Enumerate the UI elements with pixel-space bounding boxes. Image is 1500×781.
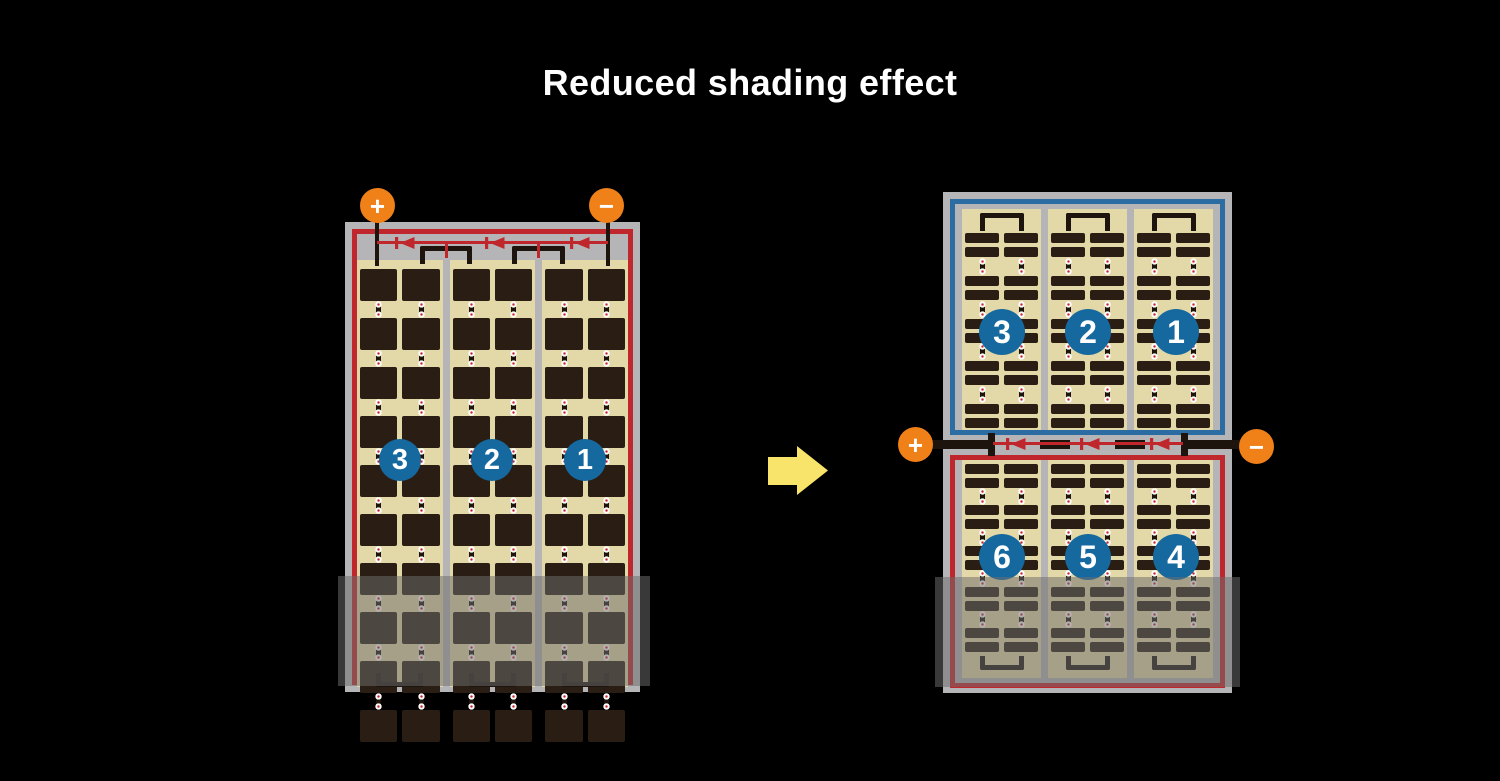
half-cell-pair — [1137, 404, 1171, 428]
cell-connector-dots — [561, 350, 568, 367]
half-cell-pair — [1051, 464, 1085, 488]
half-cell-bar — [1051, 247, 1085, 257]
half-cell-bar — [1051, 478, 1085, 488]
string-loop-connector — [1066, 213, 1110, 231]
cell-connector-dots — [468, 497, 475, 514]
cell-gap — [495, 546, 532, 563]
half-cell-bar — [1090, 464, 1124, 474]
cell-connector-dots — [375, 497, 382, 514]
half-cell-bar — [1004, 375, 1038, 385]
cell-gap — [1137, 385, 1171, 404]
bypass-diode-icon — [1080, 437, 1100, 450]
cell-connector-dots — [1151, 386, 1158, 403]
half-cell-bar — [1004, 505, 1038, 515]
cell-gap — [545, 399, 582, 416]
string-number-circle: 2 — [471, 439, 513, 481]
cell-connector-dots — [375, 399, 382, 416]
solar-cell — [545, 318, 582, 350]
cell-gap — [545, 497, 582, 514]
half-cell-bar — [965, 505, 999, 515]
half-cell-pair — [1004, 276, 1038, 300]
cell-gap — [453, 693, 490, 710]
cell-gap — [1137, 257, 1171, 276]
cell-connector-dots — [561, 399, 568, 416]
cell-connector-dots — [1104, 386, 1111, 403]
half-cell-bar — [1137, 519, 1171, 529]
half-cell-bar — [1051, 519, 1085, 529]
half-cell-pair — [1137, 233, 1171, 257]
solar-cell — [402, 367, 439, 399]
half-cell-bar — [1090, 418, 1124, 428]
half-cell-bar — [965, 233, 999, 243]
half-cell-bar — [1051, 276, 1085, 286]
cell-connector-dots — [603, 350, 610, 367]
cell-connector-dots — [468, 350, 475, 367]
diagram-canvas: Reduced shading effect + − 3 2 — [0, 0, 1500, 781]
cell-gap — [1137, 488, 1171, 505]
cell-gap — [402, 693, 439, 710]
half-cell-pair — [1051, 404, 1085, 428]
half-cell-bar — [1090, 361, 1124, 371]
string-number-circle: 5 — [1065, 534, 1111, 580]
bypass-diode-icon — [395, 236, 415, 249]
cell-connector-dots — [468, 399, 475, 416]
half-cell-bar — [1137, 233, 1171, 243]
half-cell-bar — [1176, 464, 1210, 474]
cell-connector-dots — [375, 350, 382, 367]
half-cell-bar — [1137, 464, 1171, 474]
cell-gap — [1176, 385, 1210, 404]
half-cell-pair — [1090, 276, 1124, 300]
cell-connector-dots — [979, 258, 986, 275]
negative-terminal: − — [1239, 429, 1274, 464]
string-number-circle: 2 — [1065, 309, 1111, 355]
half-cell-pair — [965, 276, 999, 300]
cell-gap — [402, 301, 439, 318]
half-cell-pair — [1004, 505, 1038, 529]
solar-cell — [453, 367, 490, 399]
half-cell-bar — [1004, 290, 1038, 300]
shading-overlay-right — [935, 577, 1240, 687]
half-cell-bar — [1137, 290, 1171, 300]
solar-cell — [360, 269, 397, 301]
half-cell-bar — [1004, 361, 1038, 371]
half-cell-bar — [1176, 375, 1210, 385]
half-cell-pair — [1004, 464, 1038, 488]
half-cell-bar — [1004, 464, 1038, 474]
half-cell-pair — [965, 233, 999, 257]
solar-cell — [495, 269, 532, 301]
half-cell-pair — [1176, 404, 1210, 428]
cell-gap — [495, 693, 532, 710]
cell-connector-dots — [375, 693, 382, 710]
half-cell-bar — [1004, 276, 1038, 286]
cell-gap — [965, 385, 999, 404]
junction-wire — [1185, 440, 1245, 449]
bypass-diode-icon — [570, 236, 590, 249]
half-cell-bar — [1176, 519, 1210, 529]
half-cell-bar — [1137, 478, 1171, 488]
half-cell-pair — [1004, 361, 1038, 385]
cell-connector-dots — [1151, 343, 1158, 360]
shading-overlay-left — [338, 576, 650, 686]
cell-gap — [402, 399, 439, 416]
solar-cell — [453, 710, 490, 742]
cell-connector-dots — [510, 301, 517, 318]
string-number-circle: 6 — [979, 534, 1025, 580]
cell-gap — [588, 350, 625, 367]
cell-connector-dots — [1065, 386, 1072, 403]
half-cell-bar — [965, 276, 999, 286]
cell-gap — [453, 399, 490, 416]
half-cell-bar — [1004, 247, 1038, 257]
half-cell-bar — [965, 464, 999, 474]
solar-cell — [360, 710, 397, 742]
half-cell-bar — [1176, 247, 1210, 257]
half-cell-bar — [1004, 233, 1038, 243]
half-cell-pair — [1137, 505, 1171, 529]
cell-connector-dots — [418, 350, 425, 367]
string-loop-connector — [1152, 213, 1196, 231]
cell-connector-dots — [510, 693, 517, 710]
solar-cell — [495, 318, 532, 350]
half-cell-bar — [1004, 519, 1038, 529]
half-cell-pair — [1051, 361, 1085, 385]
cell-connector-dots — [468, 546, 475, 563]
cell-gap — [545, 350, 582, 367]
transition-arrow-icon — [765, 444, 831, 498]
string-number-circle: 1 — [564, 439, 606, 481]
cell-connector-dots — [418, 301, 425, 318]
half-cell-pair — [1176, 505, 1210, 529]
solar-cell — [495, 367, 532, 399]
half-cell-bar — [1004, 418, 1038, 428]
bypass-diode-icon — [1150, 437, 1170, 450]
half-cell-pair — [1090, 464, 1124, 488]
cell-gap — [360, 497, 397, 514]
string-number-circle: 3 — [979, 309, 1025, 355]
half-cell-bar — [1051, 418, 1085, 428]
half-cell-bar — [1137, 361, 1171, 371]
half-cell-pair — [1137, 276, 1171, 300]
half-cell-pair — [1137, 361, 1171, 385]
string-number-circle: 1 — [1153, 309, 1199, 355]
half-cell-pair — [1090, 404, 1124, 428]
cell-gap — [1090, 257, 1124, 276]
solar-cell — [588, 318, 625, 350]
half-cell-bar — [1051, 233, 1085, 243]
cell-connector-dots — [468, 301, 475, 318]
cell-gap — [1051, 488, 1085, 505]
half-cell-bar — [1004, 404, 1038, 414]
cell-gap — [495, 301, 532, 318]
half-cell-bar — [1090, 290, 1124, 300]
bypass-diode-icon — [1006, 437, 1026, 450]
cell-gap — [495, 350, 532, 367]
cell-gap — [588, 693, 625, 710]
cell-connector-dots — [510, 546, 517, 563]
half-cell-bar — [1137, 247, 1171, 257]
cell-gap — [545, 546, 582, 563]
junction-wire — [931, 440, 993, 449]
half-cell-bar — [965, 361, 999, 371]
half-cell-bar — [1090, 519, 1124, 529]
cell-connector-dots — [1104, 258, 1111, 275]
half-cell-bar — [1176, 233, 1210, 243]
cell-gap — [588, 399, 625, 416]
half-cell-bar — [965, 478, 999, 488]
cell-connector-dots — [1190, 488, 1197, 505]
cell-connector-dots — [1190, 258, 1197, 275]
diode-tap-wire — [537, 243, 540, 258]
half-cell-bar — [1176, 505, 1210, 515]
negative-terminal: − — [589, 188, 624, 223]
cell-gap — [965, 488, 999, 505]
half-cell-bar — [1090, 404, 1124, 414]
half-cell-pair — [1090, 361, 1124, 385]
cell-connector-dots — [603, 301, 610, 318]
cell-connector-dots — [1151, 488, 1158, 505]
half-cell-pair — [965, 464, 999, 488]
half-cell-bar — [1090, 233, 1124, 243]
half-cell-bar — [1137, 418, 1171, 428]
solar-cell — [588, 710, 625, 742]
half-cell-bar — [1051, 290, 1085, 300]
cell-gap — [402, 497, 439, 514]
cell-connector-dots — [375, 546, 382, 563]
cell-gap — [1004, 488, 1038, 505]
cell-connector-dots — [418, 546, 425, 563]
half-cell-pair — [1004, 404, 1038, 428]
half-cell-bar — [1051, 404, 1085, 414]
cell-gap — [1090, 385, 1124, 404]
right-bypass-diode-line — [993, 442, 1183, 445]
cell-gap — [495, 497, 532, 514]
cell-connector-dots — [1018, 488, 1025, 505]
half-cell-bar — [1137, 404, 1171, 414]
cell-connector-dots — [603, 693, 610, 710]
diode-tap-wire — [445, 243, 448, 258]
solar-cell — [360, 318, 397, 350]
half-cell-pair — [965, 505, 999, 529]
half-cell-bar — [965, 375, 999, 385]
half-cell-bar — [1051, 505, 1085, 515]
solar-cell — [545, 710, 582, 742]
solar-cell — [402, 318, 439, 350]
half-cell-pair — [965, 361, 999, 385]
cell-connector-dots — [510, 399, 517, 416]
cell-gap — [588, 546, 625, 563]
half-cell-bar — [1176, 361, 1210, 371]
cell-connector-dots — [603, 399, 610, 416]
cell-connector-dots — [603, 546, 610, 563]
solar-cell — [453, 318, 490, 350]
cell-gap — [1176, 488, 1210, 505]
half-cell-pair — [965, 404, 999, 428]
cell-gap — [1176, 257, 1210, 276]
cell-gap — [588, 301, 625, 318]
half-cell-bar — [1176, 290, 1210, 300]
cell-connector-dots — [1104, 488, 1111, 505]
diagram-title: Reduced shading effect — [0, 62, 1500, 104]
solar-cell — [402, 710, 439, 742]
cell-connector-dots — [561, 497, 568, 514]
half-cell-pair — [1176, 361, 1210, 385]
minus-icon: − — [599, 193, 614, 219]
cell-connector-dots — [561, 546, 568, 563]
solar-cell — [588, 367, 625, 399]
solar-cell — [402, 269, 439, 301]
cell-connector-dots — [1065, 258, 1072, 275]
solar-cell — [453, 269, 490, 301]
half-cell-bar — [1176, 276, 1210, 286]
half-cell-pair — [1004, 233, 1038, 257]
half-cell-pair — [1051, 276, 1085, 300]
cell-connector-dots — [1018, 258, 1025, 275]
cell-gap — [453, 350, 490, 367]
cell-gap — [965, 257, 999, 276]
cell-gap — [453, 546, 490, 563]
half-cell-pair — [1090, 505, 1124, 529]
cell-connector-dots — [1065, 488, 1072, 505]
cell-connector-dots — [1190, 386, 1197, 403]
half-cell-pair — [1051, 233, 1085, 257]
half-cell-bar — [1137, 375, 1171, 385]
half-cell-bar — [965, 404, 999, 414]
half-cell-bar — [965, 290, 999, 300]
cell-gap — [402, 546, 439, 563]
cell-connector-dots — [561, 301, 568, 318]
half-cell-bar — [1176, 404, 1210, 414]
half-cell-bar — [1051, 361, 1085, 371]
cell-connector-dots — [1151, 301, 1158, 318]
half-cell-bar — [1090, 276, 1124, 286]
half-cell-bar — [1004, 478, 1038, 488]
cell-connector-dots — [510, 350, 517, 367]
cell-connector-dots — [510, 497, 517, 514]
half-cell-bar — [1090, 247, 1124, 257]
half-cell-bar — [1090, 375, 1124, 385]
cell-gap — [453, 301, 490, 318]
cell-gap — [545, 301, 582, 318]
half-cell-pair — [1176, 276, 1210, 300]
half-cell-pair — [1137, 464, 1171, 488]
cell-gap — [360, 350, 397, 367]
plus-icon: + — [370, 193, 385, 219]
solar-cell — [588, 269, 625, 301]
half-cell-bar — [965, 418, 999, 428]
half-cell-bar — [1137, 505, 1171, 515]
solar-cell — [453, 514, 490, 546]
cell-gap — [360, 301, 397, 318]
cell-gap — [1004, 385, 1038, 404]
cell-gap — [360, 399, 397, 416]
half-cell-bar — [965, 247, 999, 257]
solar-cell — [360, 367, 397, 399]
half-cell-bar — [1176, 418, 1210, 428]
solar-cell — [495, 710, 532, 742]
cell-connector-dots — [418, 399, 425, 416]
solar-cell — [402, 514, 439, 546]
half-cell-bar — [1137, 276, 1171, 286]
half-cell-bar — [1090, 505, 1124, 515]
half-cell-bar — [1176, 478, 1210, 488]
cell-connector-dots — [1018, 386, 1025, 403]
string-loop-connector — [980, 213, 1024, 231]
half-cell-bar — [1090, 478, 1124, 488]
half-cell-pair — [1090, 233, 1124, 257]
cell-connector-dots — [979, 386, 986, 403]
cell-gap — [1051, 257, 1085, 276]
cell-connector-dots — [468, 693, 475, 710]
cell-connector-dots — [979, 488, 986, 505]
cell-connector-dots — [603, 497, 610, 514]
positive-terminal: + — [898, 427, 933, 462]
half-cell-bar — [965, 519, 999, 529]
cell-gap — [1051, 385, 1085, 404]
half-cell-pair — [1176, 464, 1210, 488]
cell-connector-dots — [1151, 258, 1158, 275]
solar-cell — [545, 269, 582, 301]
cell-gap — [1090, 488, 1124, 505]
plus-icon: + — [908, 432, 923, 458]
cell-gap — [360, 693, 397, 710]
half-cell-pair — [1051, 505, 1085, 529]
solar-cell — [360, 514, 397, 546]
cell-gap — [360, 546, 397, 563]
cell-gap — [453, 497, 490, 514]
cell-gap — [402, 350, 439, 367]
cell-gap — [545, 693, 582, 710]
solar-cell — [545, 514, 582, 546]
half-cell-bar — [1051, 464, 1085, 474]
cell-gap — [1004, 257, 1038, 276]
cell-connector-dots — [375, 301, 382, 318]
string-number-circle: 4 — [1153, 534, 1199, 580]
solar-cell — [545, 367, 582, 399]
bypass-diode-icon — [485, 236, 505, 249]
solar-cell — [588, 514, 625, 546]
cell-gap — [588, 497, 625, 514]
string-number-circle: 3 — [379, 439, 421, 481]
half-cell-bar — [1051, 375, 1085, 385]
solar-cell — [495, 514, 532, 546]
cell-gap — [495, 399, 532, 416]
left-bypass-diode-line — [377, 241, 608, 244]
half-cell-pair — [1176, 233, 1210, 257]
positive-terminal: + — [360, 188, 395, 223]
cell-connector-dots — [561, 693, 568, 710]
minus-icon: − — [1249, 434, 1264, 460]
cell-connector-dots — [418, 497, 425, 514]
cell-connector-dots — [418, 693, 425, 710]
